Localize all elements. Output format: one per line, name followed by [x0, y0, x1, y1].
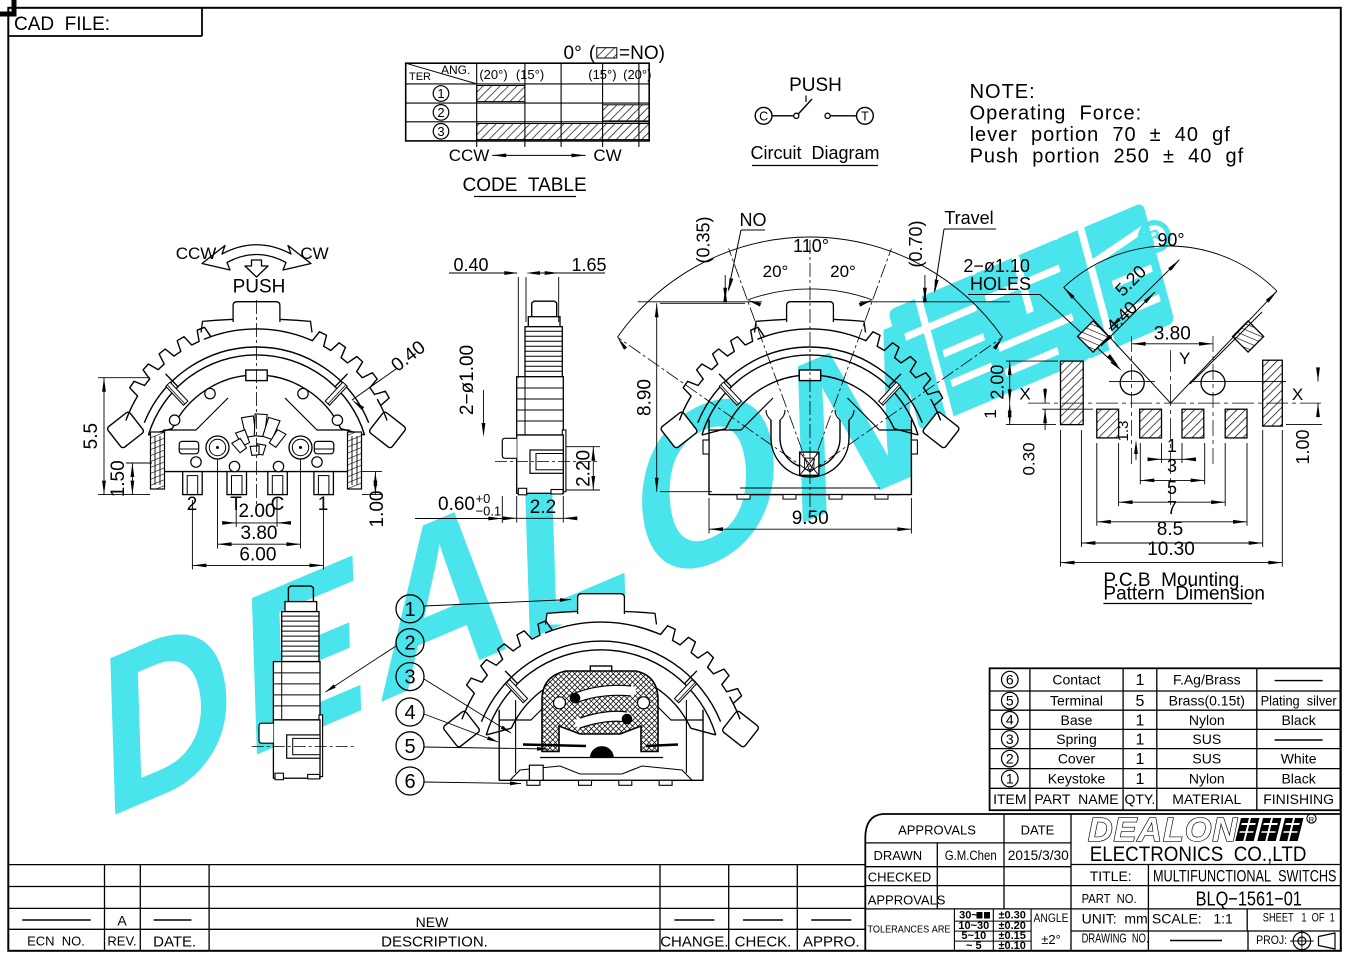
svg-text:1: 1: [981, 409, 1000, 418]
svg-text:1: 1: [1006, 770, 1014, 786]
svg-text:APPRO.: APPRO.: [803, 934, 860, 951]
svg-text:(0.70): (0.70): [906, 220, 926, 267]
svg-text:4: 4: [1006, 712, 1014, 728]
svg-text:±0.10: ±0.10: [998, 940, 1025, 952]
svg-text:Travel: Travel: [944, 208, 993, 228]
svg-text:0.30: 0.30: [1020, 442, 1039, 475]
svg-text:2.2: 2.2: [530, 497, 556, 518]
svg-text:5: 5: [1167, 478, 1177, 498]
svg-text:DEALON: DEALON: [73, 274, 950, 862]
svg-text:ECN NO.: ECN NO.: [27, 934, 85, 949]
svg-text:1: 1: [318, 494, 329, 515]
svg-text:Black: Black: [1281, 771, 1316, 787]
svg-text:2−ø1.00: 2−ø1.00: [457, 345, 478, 415]
svg-text:4: 4: [404, 702, 415, 724]
svg-text:9.50: 9.50: [792, 508, 829, 529]
svg-text:DATE.: DATE.: [153, 934, 196, 951]
svg-text:20°: 20°: [830, 262, 856, 281]
svg-text:X: X: [1019, 385, 1030, 404]
svg-text:3: 3: [404, 667, 415, 689]
svg-text:APPROVALS: APPROVALS: [868, 893, 946, 908]
svg-text:A: A: [117, 913, 127, 929]
svg-text:Contact: Contact: [1052, 672, 1100, 688]
svg-text:±2°: ±2°: [1041, 932, 1061, 947]
svg-text:CODE TABLE: CODE TABLE: [462, 175, 586, 196]
svg-text:Plating silver: Plating silver: [1261, 694, 1337, 709]
svg-text:0°: 0°: [564, 43, 582, 64]
svg-text:DRAWING NO.: DRAWING NO.: [1082, 932, 1149, 946]
svg-text:SUS: SUS: [1192, 751, 1221, 767]
svg-text:CCW: CCW: [449, 146, 490, 165]
svg-text:1.00: 1.00: [367, 491, 388, 528]
svg-text:FINISHING: FINISHING: [1263, 791, 1334, 807]
svg-text:~ 5: ~ 5: [966, 940, 982, 952]
svg-text:T: T: [861, 109, 869, 123]
svg-text:MULTIFUNCTIONAL SWITCHS: MULTIFUNCTIONAL SWITCHS: [1153, 867, 1337, 886]
svg-text:1: 1: [1135, 732, 1144, 749]
svg-text:PUSH: PUSH: [233, 277, 286, 298]
svg-text:5: 5: [1006, 693, 1014, 709]
svg-text:3: 3: [437, 124, 444, 139]
svg-text:=NO): =NO): [619, 43, 665, 64]
svg-text:2: 2: [437, 105, 444, 120]
svg-text:1: 1: [1135, 672, 1144, 689]
svg-text:1.3: 1.3: [1115, 421, 1132, 442]
svg-text:Pattern Dimension: Pattern Dimension: [1103, 584, 1265, 605]
svg-text:Push portion 250 ± 40 gf: Push portion 250 ± 40 gf: [970, 146, 1245, 168]
svg-text:1: 1: [404, 599, 415, 621]
svg-text:2−ø1.10: 2−ø1.10: [963, 256, 1030, 276]
svg-text:C: C: [759, 109, 768, 123]
svg-text:PART NAME: PART NAME: [1034, 791, 1118, 807]
svg-text:TER: TER: [409, 71, 431, 83]
svg-text:NOTE:: NOTE:: [970, 81, 1036, 103]
svg-text:TITLE:: TITLE:: [1090, 868, 1132, 884]
svg-text:0.60: 0.60: [438, 494, 475, 515]
svg-text:Nylon: Nylon: [1189, 771, 1225, 787]
svg-text:ANGLE: ANGLE: [1034, 913, 1069, 925]
svg-text:10.30: 10.30: [1147, 539, 1195, 560]
svg-text:1: 1: [1167, 436, 1177, 456]
svg-text:1: 1: [1135, 712, 1144, 729]
svg-text:G.M.Chen: G.M.Chen: [945, 848, 997, 863]
svg-text:Keystoke: Keystoke: [1048, 771, 1106, 787]
svg-text:8.5: 8.5: [1157, 519, 1183, 540]
svg-text:Y: Y: [1179, 349, 1190, 368]
svg-text:CW: CW: [593, 146, 621, 165]
svg-text:BLQ−1561−01: BLQ−1561−01: [1196, 889, 1302, 911]
svg-text:Cover: Cover: [1058, 751, 1096, 767]
svg-text:CHANGE.: CHANGE.: [660, 934, 728, 951]
svg-text:1: 1: [437, 86, 444, 101]
svg-text:F.Ag/Brass: F.Ag/Brass: [1173, 672, 1241, 688]
svg-text:CHECKED: CHECKED: [868, 869, 932, 884]
svg-text:(20°): (20°): [623, 67, 651, 82]
svg-text:QTY.: QTY.: [1124, 791, 1155, 807]
svg-text:ELECTRONICS CO.,LTD: ELECTRONICS CO.,LTD: [1090, 843, 1307, 866]
svg-text:CW: CW: [300, 244, 328, 263]
svg-text:CCW: CCW: [176, 244, 217, 263]
svg-text:1.65: 1.65: [571, 255, 606, 275]
svg-text:MATERIAL: MATERIAL: [1172, 791, 1241, 807]
svg-text:SHEET 1 OF 1: SHEET 1 OF 1: [1263, 913, 1335, 925]
svg-text:DATE: DATE: [1021, 822, 1055, 837]
svg-text:1.00: 1.00: [1293, 429, 1313, 464]
svg-text:R: R: [1309, 815, 1315, 824]
svg-text:DESCRIPTION.: DESCRIPTION.: [381, 934, 488, 951]
svg-text:UNIT: mm: UNIT: mm: [1082, 911, 1148, 927]
svg-text:5: 5: [404, 736, 415, 758]
svg-text:Circuit Diagram: Circuit Diagram: [750, 143, 879, 163]
svg-text:SUS: SUS: [1192, 731, 1221, 747]
svg-text:3: 3: [1167, 456, 1177, 476]
svg-text:SCALE: 1:1: SCALE: 1:1: [1152, 911, 1233, 927]
svg-text:3.80: 3.80: [241, 523, 278, 544]
svg-text:REV.: REV.: [107, 934, 136, 949]
svg-text:8.90: 8.90: [635, 379, 656, 416]
svg-text:20°: 20°: [763, 262, 789, 281]
svg-text:3.80: 3.80: [1154, 323, 1191, 344]
svg-text:Nylon: Nylon: [1189, 712, 1225, 728]
svg-text:5: 5: [1135, 693, 1144, 710]
svg-text:PUSH: PUSH: [789, 75, 842, 96]
svg-text:0.40: 0.40: [453, 255, 488, 275]
svg-text:Spring: Spring: [1056, 731, 1096, 747]
svg-text:(20°): (20°): [479, 67, 507, 82]
svg-text:2.00: 2.00: [988, 365, 1008, 400]
svg-text:7: 7: [1167, 498, 1177, 518]
svg-text:1: 1: [1135, 771, 1144, 788]
svg-text:X: X: [1292, 385, 1303, 404]
svg-text:PROJ:: PROJ:: [1256, 933, 1287, 947]
svg-text:DRAWN: DRAWN: [873, 848, 922, 863]
svg-text:110°: 110°: [793, 236, 829, 256]
svg-text:2015/3/30: 2015/3/30: [1008, 848, 1069, 863]
svg-text:Operating Force:: Operating Force:: [970, 103, 1143, 125]
svg-text:6.00: 6.00: [239, 544, 276, 565]
svg-text:2.00: 2.00: [239, 501, 276, 522]
svg-text:−0.1: −0.1: [476, 504, 502, 519]
svg-text:5.5: 5.5: [81, 423, 102, 449]
svg-text:HOLES: HOLES: [970, 274, 1031, 294]
svg-text:1: 1: [1135, 751, 1144, 768]
svg-text:1.50: 1.50: [108, 460, 129, 497]
svg-text:6: 6: [1006, 672, 1014, 688]
svg-text:6: 6: [404, 771, 415, 793]
svg-text:PART NO.: PART NO.: [1082, 891, 1137, 906]
svg-text:90°: 90°: [1157, 230, 1184, 250]
svg-text:2: 2: [404, 633, 415, 655]
svg-text:Terminal: Terminal: [1050, 693, 1103, 709]
svg-text:White: White: [1281, 751, 1317, 767]
svg-text:TOLERANCES ARE: TOLERANCES ARE: [868, 923, 951, 935]
svg-text:(: (: [589, 43, 596, 64]
svg-text:NEW: NEW: [416, 914, 449, 930]
svg-text:NO: NO: [740, 210, 767, 230]
svg-text:Brass(0.15t): Brass(0.15t): [1169, 693, 1245, 709]
svg-text:Base: Base: [1061, 712, 1093, 728]
svg-text:(15°): (15°): [516, 67, 544, 82]
svg-text:(0.35): (0.35): [694, 216, 714, 263]
svg-text:ANG.: ANG.: [441, 63, 470, 77]
svg-text:2.20: 2.20: [573, 450, 594, 487]
svg-text:lever portion 70 ± 40 gf: lever portion 70 ± 40 gf: [970, 124, 1231, 146]
svg-text:CAD FILE:: CAD FILE:: [14, 14, 110, 35]
svg-text:2: 2: [1006, 751, 1014, 767]
svg-text:3: 3: [1006, 731, 1014, 747]
svg-text:(15°): (15°): [588, 67, 616, 82]
svg-text:Black: Black: [1281, 712, 1316, 728]
svg-text:ITEM: ITEM: [993, 791, 1026, 807]
svg-text:CHECK.: CHECK.: [735, 934, 792, 951]
svg-text:APPROVALS: APPROVALS: [898, 822, 976, 837]
